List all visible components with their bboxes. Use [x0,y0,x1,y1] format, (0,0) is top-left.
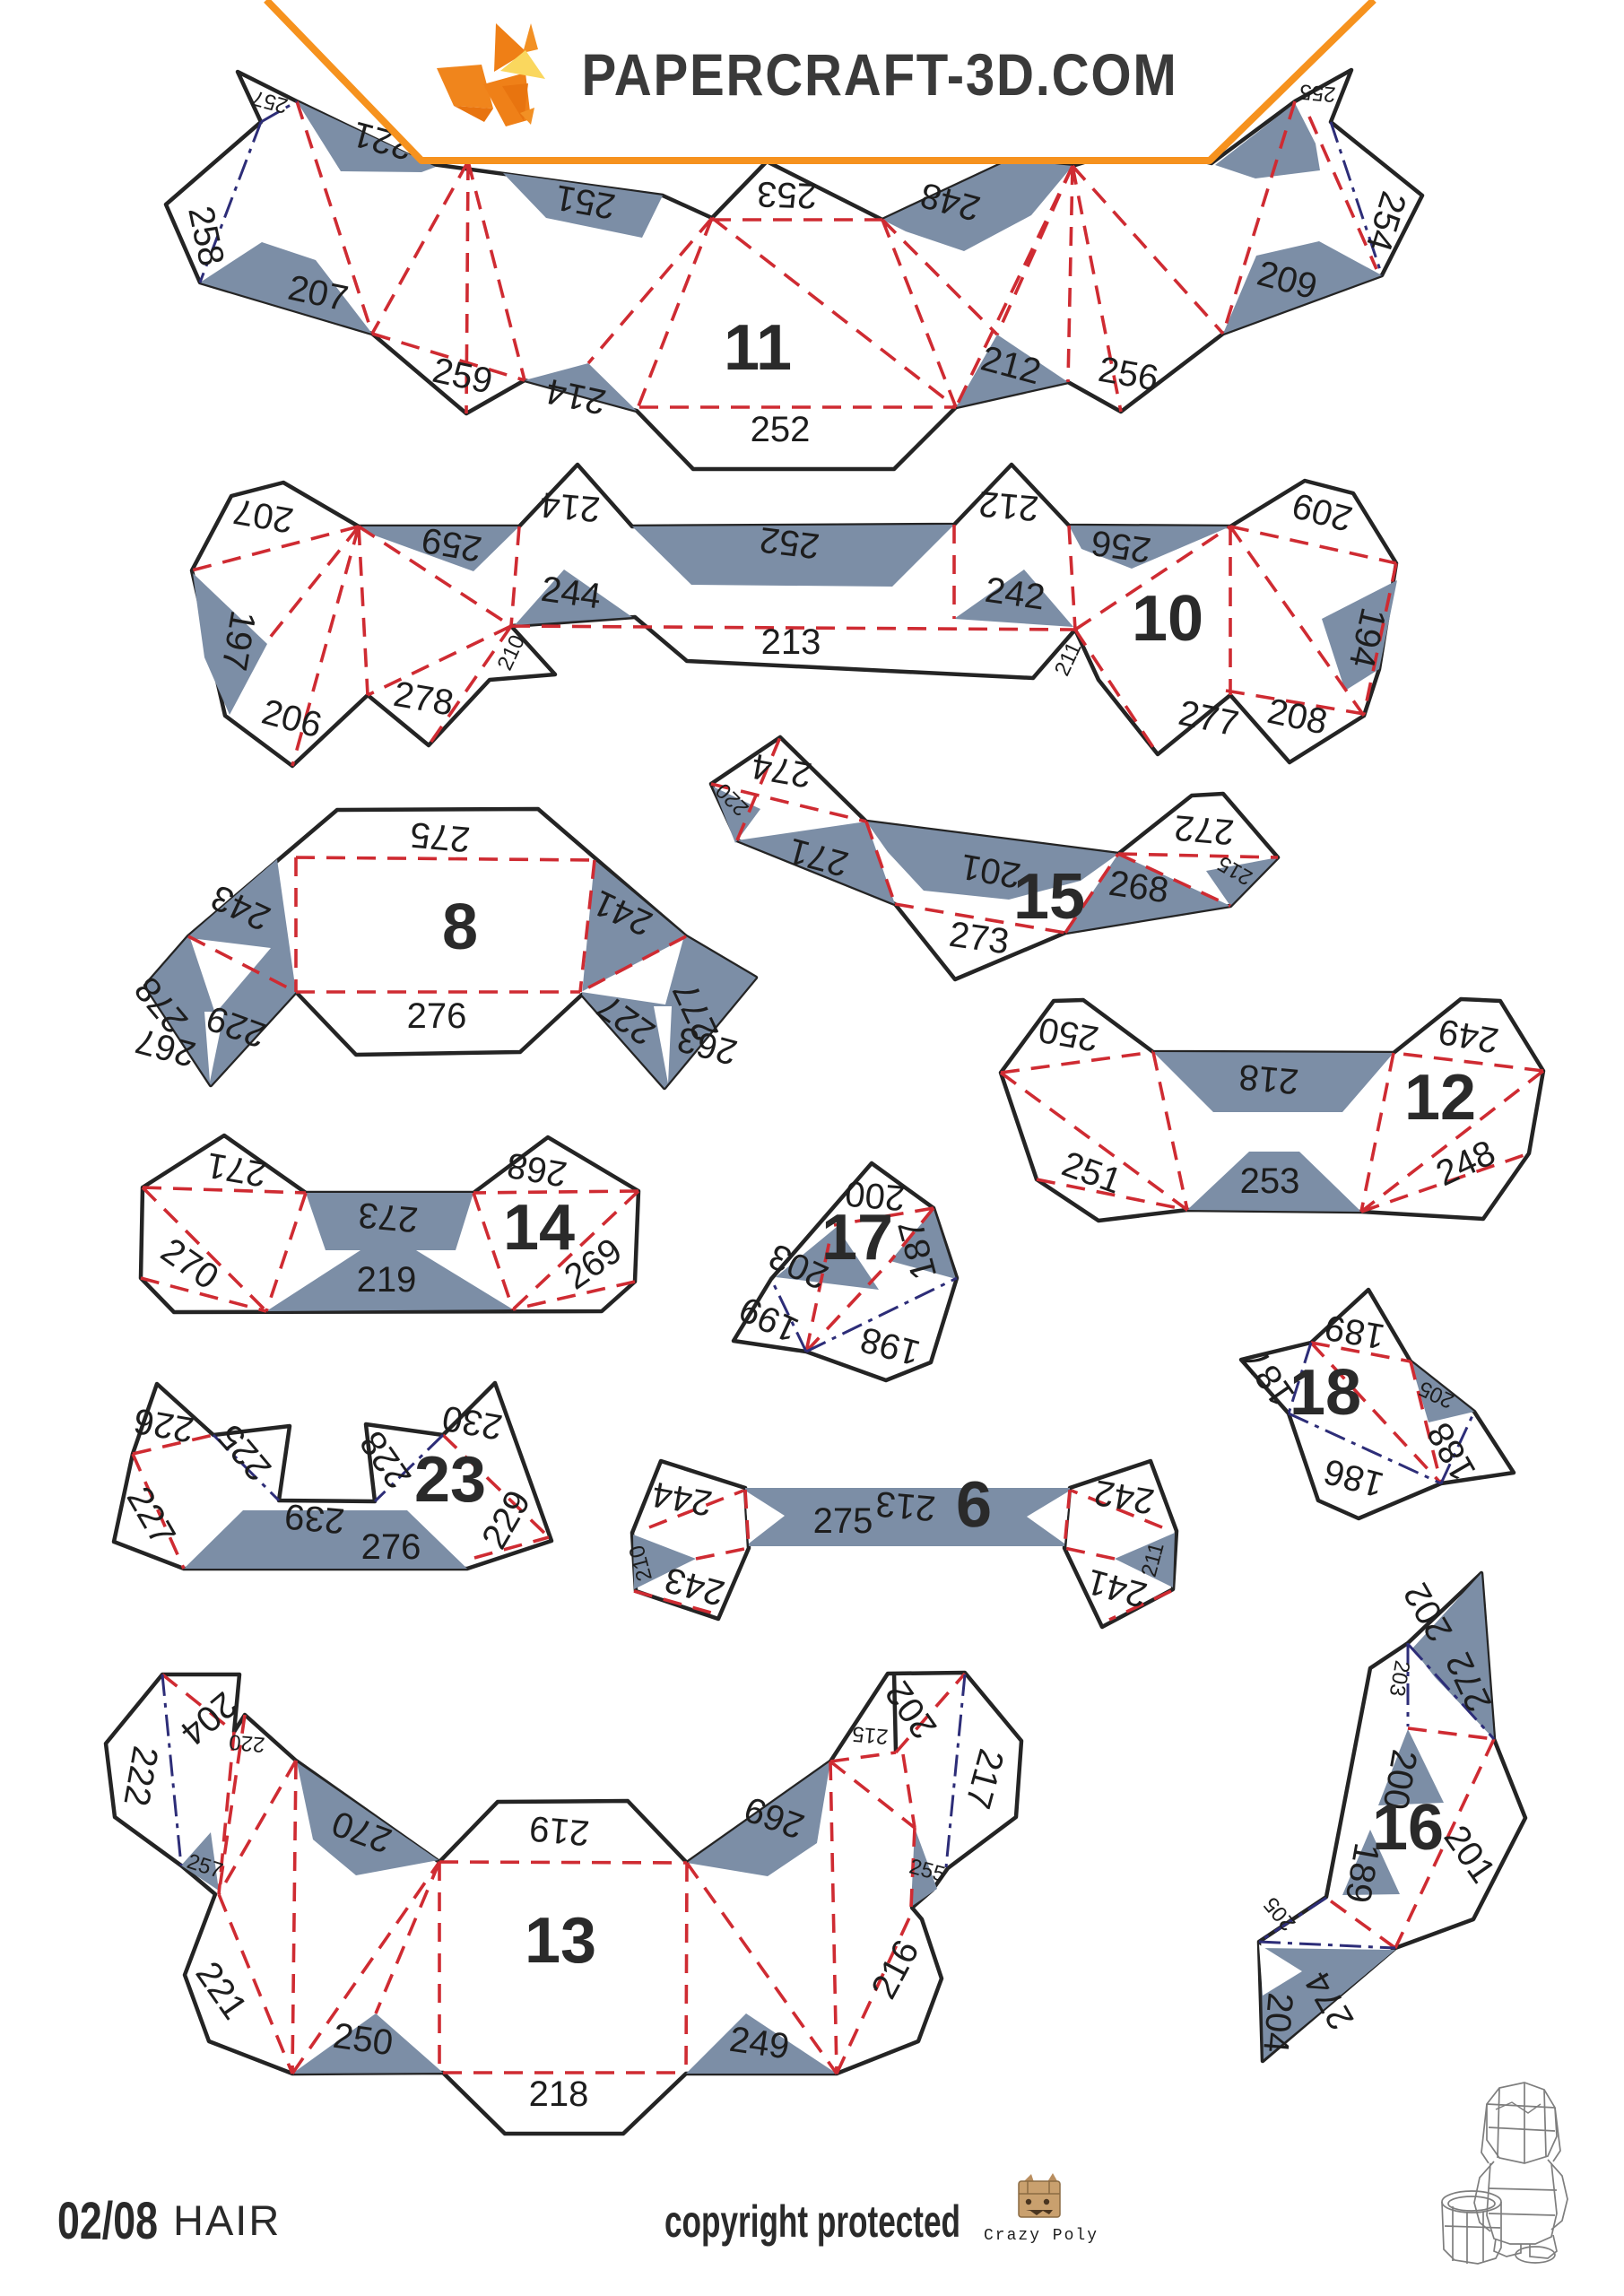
svg-text:276: 276 [407,996,467,1036]
svg-text:17: 17 [821,1202,893,1274]
svg-text:Crazy Poly: Crazy Poly [984,2227,1099,2245]
svg-text:12: 12 [1404,1062,1476,1134]
svg-text:273: 273 [947,915,1012,962]
svg-text:15: 15 [1013,861,1085,933]
svg-text:219: 219 [357,1260,417,1300]
svg-text:255: 255 [1298,79,1336,106]
svg-text:244: 244 [539,570,604,617]
svg-text:220: 220 [228,1729,265,1756]
svg-text:213: 213 [761,622,821,662]
svg-text:275: 275 [813,1501,873,1541]
svg-text:14: 14 [503,1192,575,1264]
svg-text:copyright protected: copyright protected [664,2196,960,2247]
svg-text:214: 214 [539,484,602,529]
svg-text:213: 213 [874,1483,937,1528]
svg-text:PAPERCRAFT-3D.COM: PAPERCRAFT-3D.COM [582,41,1178,108]
svg-text:242: 242 [983,570,1047,618]
svg-text:272: 272 [1173,807,1236,852]
svg-text:218: 218 [529,2074,589,2114]
svg-text:219: 219 [528,1808,591,1853]
svg-text:02/08: 02/08 [57,2192,158,2250]
svg-text:215: 215 [851,1721,889,1748]
svg-text:249: 249 [727,2020,792,2067]
svg-text:276: 276 [361,1527,421,1567]
svg-text:218: 218 [1238,1057,1300,1101]
svg-text:239: 239 [283,1496,346,1541]
svg-text:16: 16 [1372,1792,1444,1864]
svg-text:204: 204 [1255,1991,1300,2054]
svg-text:HAIR: HAIR [173,2196,281,2244]
svg-text:10: 10 [1132,583,1203,655]
svg-text:252: 252 [751,410,811,449]
svg-text:250: 250 [331,2016,395,2064]
svg-text:275: 275 [409,814,472,859]
svg-text:253: 253 [1240,1161,1300,1201]
svg-text:9: 9 [956,1467,992,1539]
svg-text:18: 18 [1290,1357,1361,1429]
svg-text:23: 23 [414,1444,486,1516]
svg-text:8: 8 [442,891,478,963]
svg-text:11: 11 [724,312,792,384]
svg-text:212: 212 [977,483,1040,528]
svg-text:273: 273 [357,1195,420,1239]
svg-text:13: 13 [525,1905,596,1977]
svg-text:253: 253 [756,174,817,215]
svg-text:252: 252 [758,519,822,566]
svg-text:268: 268 [1107,864,1171,911]
svg-text:256: 256 [1089,522,1153,570]
